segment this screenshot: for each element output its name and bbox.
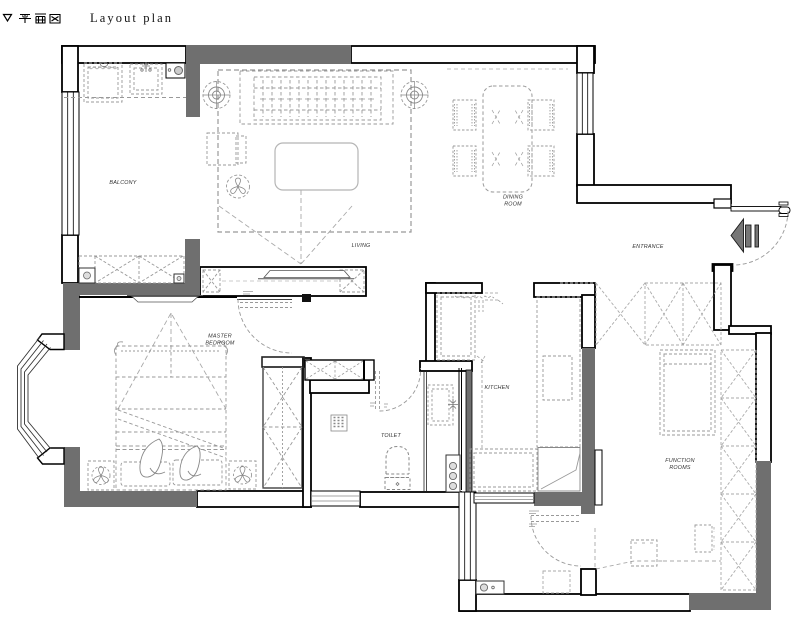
svg-text:FUNCTION: FUNCTION [665, 458, 694, 464]
svg-text:ROOM: ROOM [504, 202, 522, 208]
svg-text:BALCONY: BALCONY [109, 180, 136, 186]
svg-text:MASTER: MASTER [208, 334, 232, 340]
svg-text:Layout plan: Layout plan [90, 11, 173, 25]
svg-text:BEDROOM: BEDROOM [205, 341, 235, 347]
svg-text:TOILET: TOILET [381, 433, 401, 439]
svg-text:LIVING: LIVING [352, 243, 371, 249]
svg-text:DINING: DINING [503, 195, 523, 201]
svg-text:KITCHEN: KITCHEN [484, 385, 509, 391]
svg-text:ENTRANCE: ENTRANCE [632, 244, 663, 250]
svg-text:ROOMS: ROOMS [669, 465, 691, 471]
